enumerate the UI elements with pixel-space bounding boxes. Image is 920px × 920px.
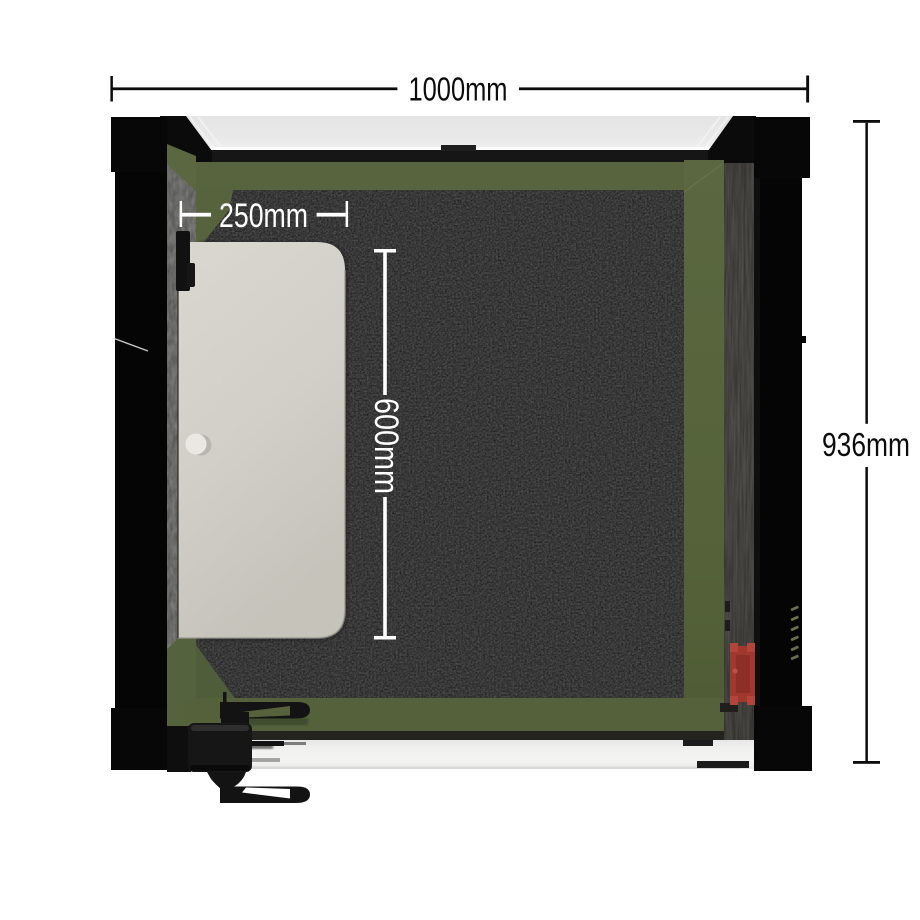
- svg-text:250mm: 250mm: [219, 197, 308, 235]
- svg-text:600mm: 600mm: [367, 398, 405, 494]
- svg-text:1000mm: 1000mm: [409, 72, 508, 109]
- svg-text:936mm: 936mm: [822, 427, 910, 464]
